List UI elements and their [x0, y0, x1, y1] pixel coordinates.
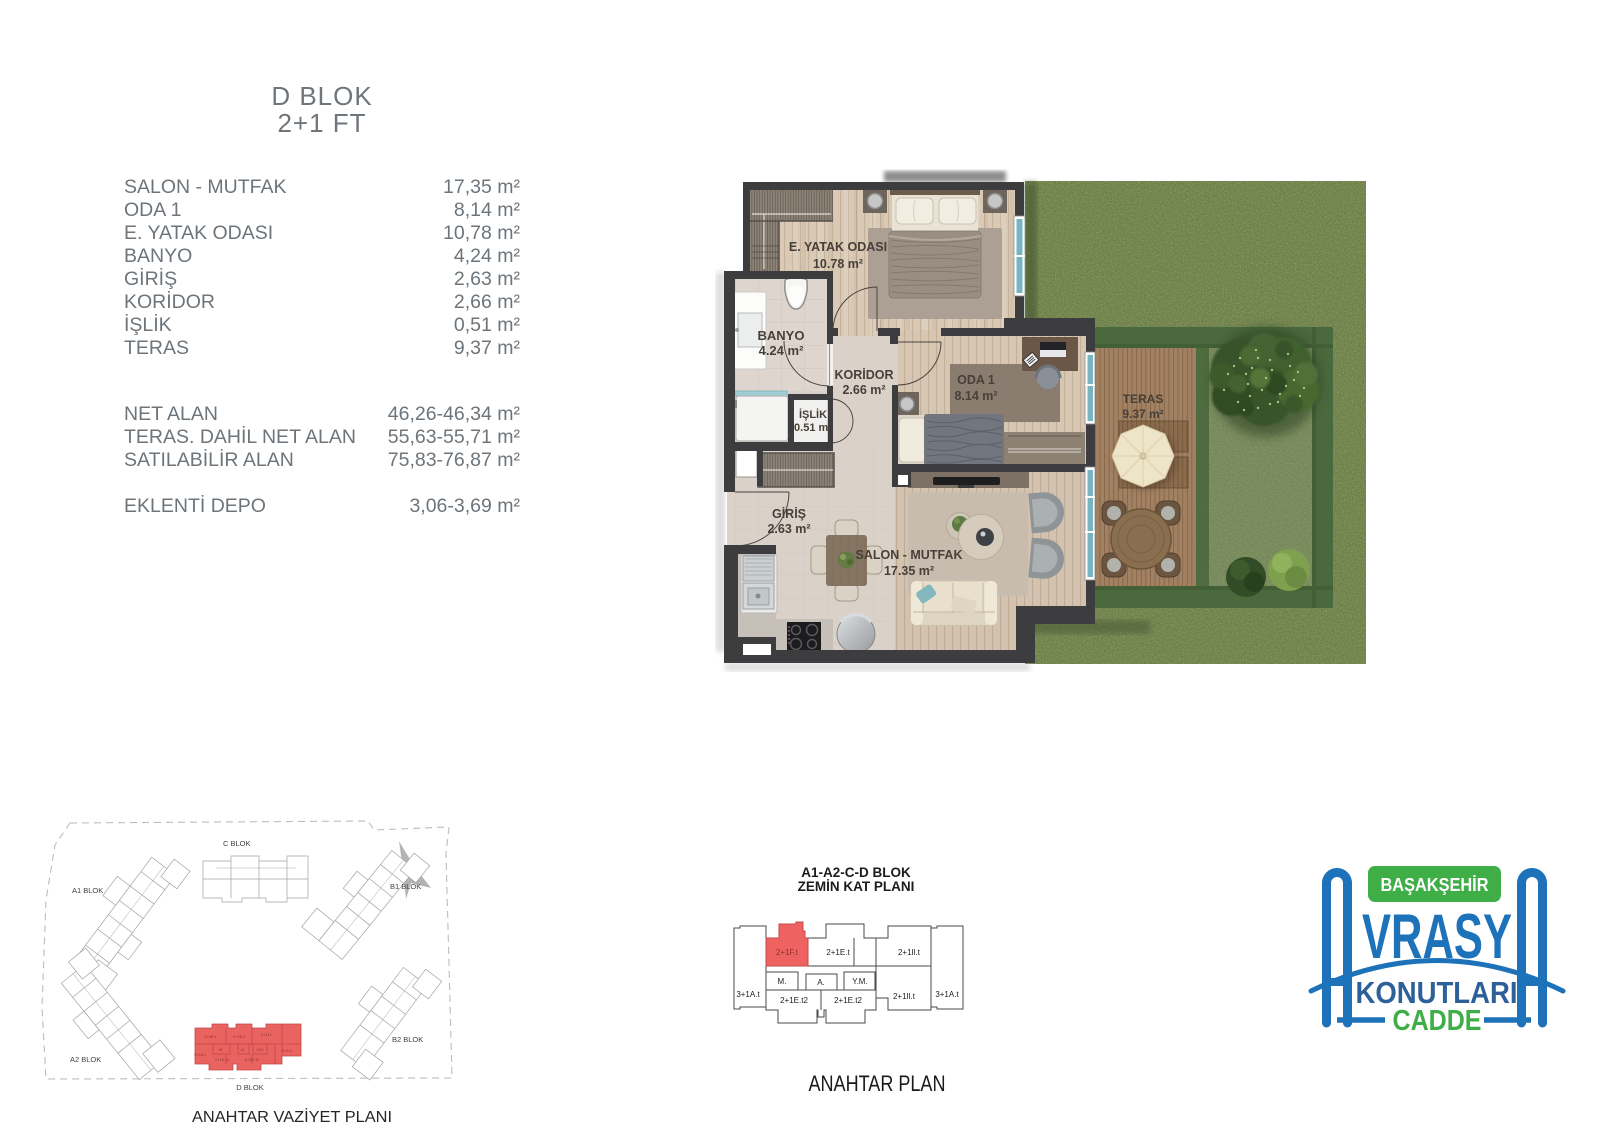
svg-text:2+1I.t: 2+1I.t [282, 1048, 293, 1053]
svg-text:KORİDOR: KORİDOR [124, 290, 215, 313]
svg-text:BAŞAKŞEHİR: BAŞAKŞEHİR [1381, 875, 1489, 895]
svg-text:NET ALAN: NET ALAN [124, 403, 218, 425]
svg-text:GİRİŞ: GİRİŞ [124, 267, 177, 290]
svg-text:İŞLİK: İŞLİK [124, 313, 172, 336]
svg-text:2+1 FT: 2+1 FT [277, 108, 366, 138]
svg-text:D BLOK: D BLOK [271, 81, 372, 111]
svg-text:0.51 m²: 0.51 m² [794, 422, 832, 434]
svg-text:GİRİŞ: GİRİŞ [772, 506, 806, 521]
svg-text:D BLOK: D BLOK [236, 1083, 264, 1092]
svg-text:2+1E.t2: 2+1E.t2 [215, 1057, 230, 1062]
svg-text:17.35 m²: 17.35 m² [884, 564, 934, 578]
svg-text:2+1Il.t: 2+1Il.t [898, 948, 921, 957]
svg-text:9,37 m²: 9,37 m² [454, 337, 521, 359]
svg-text:A.: A. [241, 1047, 245, 1052]
svg-text:2,66 m²: 2,66 m² [454, 291, 521, 313]
svg-text:TERAS. DAHİL NET ALAN: TERAS. DAHİL NET ALAN [124, 425, 356, 448]
svg-text:75,83-76,87 m²: 75,83-76,87 m² [388, 449, 521, 471]
svg-text:ANAHTAR PLAN: ANAHTAR PLAN [809, 1071, 946, 1096]
svg-text:8.14 m²: 8.14 m² [954, 389, 997, 403]
svg-text:9.37 m²: 9.37 m² [1122, 407, 1163, 421]
svg-text:E. YATAK ODASI: E. YATAK ODASI [124, 222, 273, 244]
svg-text:17,35 m²: 17,35 m² [443, 176, 520, 198]
svg-text:3,06-3,69 m²: 3,06-3,69 m² [409, 495, 520, 517]
svg-text:ODA 1: ODA 1 [124, 199, 181, 221]
svg-text:3+1A.t: 3+1A.t [935, 990, 959, 999]
svg-text:Y.M.: Y.M. [852, 977, 867, 986]
svg-text:ODA 1: ODA 1 [957, 373, 995, 387]
svg-text:A1-A2-C-D BLOK: A1-A2-C-D BLOK [801, 865, 911, 880]
svg-text:4,24 m²: 4,24 m² [454, 245, 521, 267]
svg-text:2+1E.t2: 2+1E.t2 [245, 1057, 260, 1062]
svg-text:İŞLİK: İŞLİK [799, 408, 827, 421]
svg-text:EKLENTİ DEPO: EKLENTİ DEPO [124, 494, 266, 517]
svg-text:2+1E.t2: 2+1E.t2 [780, 996, 808, 1005]
svg-text:M.: M. [778, 977, 787, 986]
svg-text:M.: M. [219, 1047, 223, 1052]
svg-text:46,26-46,34 m²: 46,26-46,34 m² [388, 403, 521, 425]
svg-text:C BLOK: C BLOK [223, 839, 251, 848]
svg-text:CADDE: CADDE [1393, 1005, 1482, 1037]
svg-text:Y.M.: Y.M. [256, 1047, 264, 1052]
svg-text:A.: A. [817, 978, 825, 987]
svg-text:SALON - MUTFAK: SALON - MUTFAK [124, 176, 287, 198]
svg-text:ZEMİN KAT PLANI: ZEMİN KAT PLANI [798, 879, 915, 894]
svg-text:A2 BLOK: A2 BLOK [70, 1055, 101, 1064]
svg-text:E. YATAK ODASI: E. YATAK ODASI [789, 240, 887, 254]
svg-text:B2 BLOK: B2 BLOK [392, 1035, 423, 1044]
svg-text:3+1A.t: 3+1A.t [194, 1052, 207, 1057]
svg-text:2+1E.t: 2+1E.t [204, 1034, 217, 1039]
svg-text:TERAS: TERAS [1123, 392, 1164, 406]
svg-text:ANAHTAR VAZİYET PLANI: ANAHTAR VAZİYET PLANI [192, 1107, 392, 1126]
svg-text:2+1E.t: 2+1E.t [233, 1034, 246, 1039]
svg-text:B1 BLOK: B1 BLOK [390, 882, 421, 891]
svg-text:2,63 m²: 2,63 m² [454, 268, 521, 290]
svg-text:2+1F.t: 2+1F.t [776, 948, 799, 957]
svg-text:2+1Il.t: 2+1Il.t [893, 992, 916, 1001]
svg-text:2+1E.t2: 2+1E.t2 [834, 996, 862, 1005]
svg-text:KORİDOR: KORİDOR [834, 367, 893, 382]
svg-text:55,63-55,71 m²: 55,63-55,71 m² [388, 426, 521, 448]
svg-text:10.78 m²: 10.78 m² [813, 257, 863, 271]
svg-text:A1 BLOK: A1 BLOK [72, 886, 103, 895]
svg-text:TERAS: TERAS [124, 337, 189, 359]
svg-text:2.66 m²: 2.66 m² [842, 383, 885, 397]
svg-text:SALON - MUTFAK: SALON - MUTFAK [856, 548, 963, 562]
svg-text:8,14 m²: 8,14 m² [454, 199, 521, 221]
svg-text:SATILABİLİR ALAN: SATILABİLİR ALAN [124, 448, 294, 471]
svg-text:2+1I.t: 2+1I.t [261, 1032, 272, 1037]
svg-text:2+1E.t: 2+1E.t [826, 948, 850, 957]
svg-text:10,78 m²: 10,78 m² [443, 222, 520, 244]
svg-text:BANYO: BANYO [124, 245, 192, 267]
svg-text:3+1A.t: 3+1A.t [736, 990, 760, 999]
svg-text:0,51 m²: 0,51 m² [454, 314, 521, 336]
svg-text:BANYO: BANYO [758, 328, 805, 343]
svg-text:4.24 m²: 4.24 m² [759, 343, 804, 358]
